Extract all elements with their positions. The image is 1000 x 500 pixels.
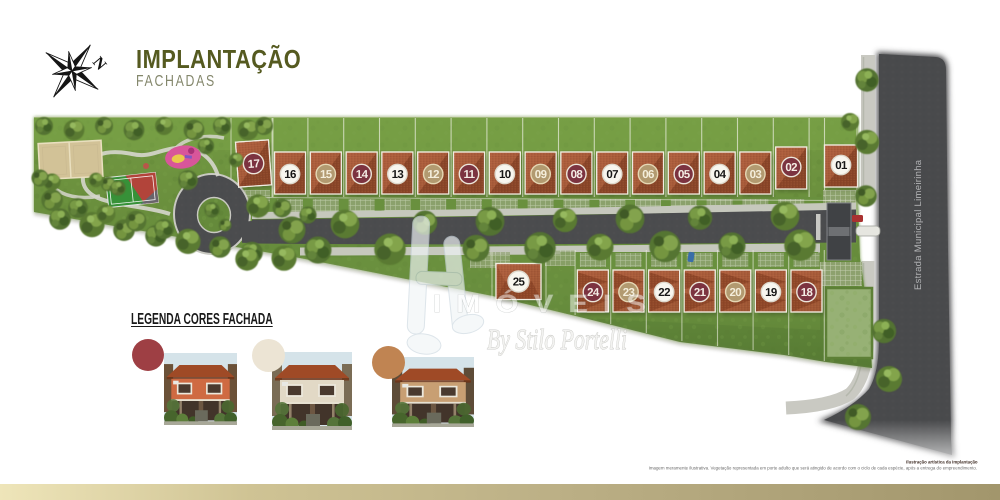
svg-text:14: 14	[356, 169, 369, 181]
svg-text:03: 03	[750, 169, 762, 181]
svg-text:17: 17	[247, 158, 260, 171]
svg-text:05: 05	[678, 169, 691, 181]
svg-text:Estrada Municipal Limeirinha: Estrada Municipal Limeirinha	[913, 159, 924, 290]
svg-text:09: 09	[535, 169, 547, 181]
svg-text:16: 16	[284, 169, 296, 181]
svg-text:N: N	[89, 54, 110, 74]
svg-text:25: 25	[513, 277, 526, 289]
svg-text:IMÓVEIS: IMÓVEIS	[433, 289, 661, 318]
svg-text:01: 01	[835, 160, 848, 172]
svg-text:By Stilo Portelli: By Stilo Portelli	[487, 324, 627, 356]
svg-text:04: 04	[714, 169, 727, 181]
svg-text:07: 07	[606, 169, 618, 181]
svg-text:20: 20	[730, 287, 742, 299]
svg-text:12: 12	[427, 169, 439, 181]
svg-text:08: 08	[571, 169, 584, 181]
svg-text:11: 11	[464, 169, 476, 181]
svg-text:02: 02	[785, 162, 797, 174]
svg-text:18: 18	[801, 287, 814, 299]
svg-text:15: 15	[320, 169, 333, 181]
svg-text:19: 19	[765, 287, 777, 299]
svg-text:21: 21	[694, 287, 707, 299]
svg-text:10: 10	[499, 169, 511, 181]
svg-text:13: 13	[392, 169, 404, 181]
svg-text:06: 06	[642, 169, 654, 181]
